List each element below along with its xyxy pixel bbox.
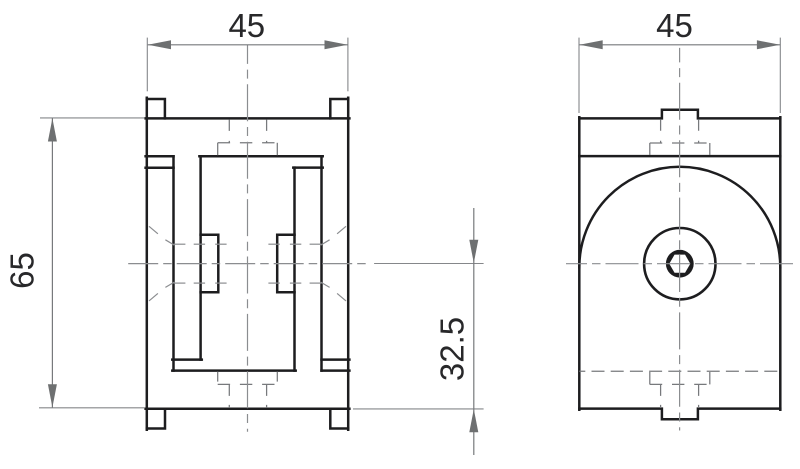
svg-text:45: 45 [656, 7, 693, 44]
svg-text:45: 45 [228, 7, 265, 44]
svg-text:65: 65 [4, 252, 41, 289]
svg-text:32.5: 32.5 [434, 317, 471, 381]
